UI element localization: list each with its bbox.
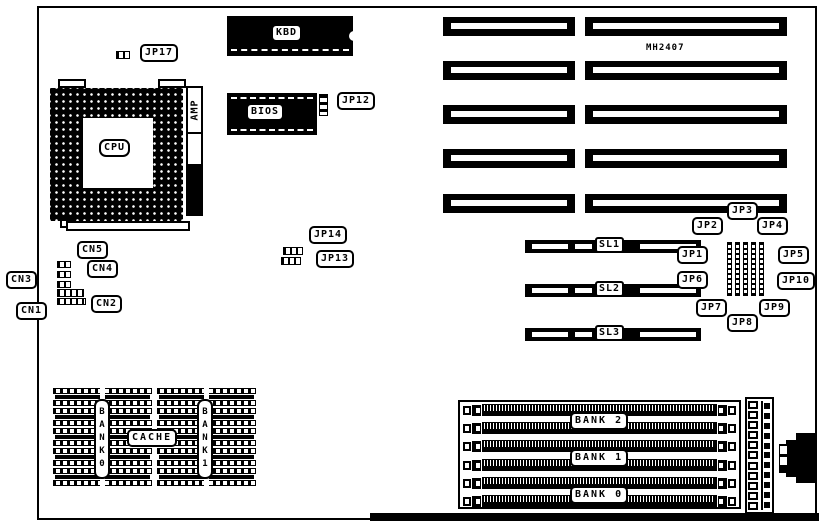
kbd-label-text: KBD: [276, 27, 297, 38]
cache-label: CACHE: [127, 429, 177, 447]
amp-module-top: AMP: [188, 88, 201, 132]
sl2-label: SL2: [595, 281, 624, 297]
cpu-socket: CPU: [50, 88, 183, 221]
bank1-label-text: BANK 1: [575, 452, 623, 463]
callout-tail: [35, 295, 41, 301]
jp12-label: JP12: [337, 92, 375, 110]
callout-tail: [79, 265, 85, 271]
jp3-label-text: JP3: [732, 205, 753, 216]
din-pin-notch: [780, 457, 787, 465]
jp10-label: JP10: [777, 272, 815, 290]
jp13-jumper: [281, 257, 301, 265]
jp17-label-text: JP17: [145, 47, 173, 58]
jp5-label: JP5: [778, 246, 809, 264]
callout-tail: [95, 288, 101, 294]
simm-socket-area: BANK 2 BANK 1 BANK 0: [458, 400, 741, 509]
cache-bank0-label: BANK0: [94, 399, 110, 479]
cpu-socket-base: [66, 221, 190, 231]
amp-label: AMP: [189, 99, 200, 120]
callout-tail: [761, 236, 767, 242]
jumper-pin-column: [759, 242, 764, 296]
power-connector: [745, 397, 774, 514]
cpu-socket-tab: [58, 79, 86, 88]
motherboard-diagram: JP17 KBD BIOS JP12 CPU AMP MH2407 SL1: [0, 0, 827, 527]
cn3-label-text: CN3: [11, 274, 32, 285]
jumper-pin-column: [743, 242, 748, 296]
jp3-label: JP3: [727, 202, 758, 220]
bios-label-text: BIOS: [251, 106, 279, 117]
jp12-label-text: JP12: [342, 95, 370, 106]
bios-chip-label: BIOS: [246, 103, 284, 121]
jp7-label: JP7: [696, 299, 727, 317]
power-connector-sockets: [748, 401, 760, 510]
callout-tail: [132, 49, 138, 55]
cpu-label: CPU: [99, 139, 130, 157]
jp12-jumper: [319, 94, 328, 116]
jp6-label-text: JP6: [682, 274, 703, 285]
chip-pin-row: [231, 97, 313, 99]
din-pin-notch: [780, 446, 787, 454]
kbd-chip-label: KBD: [271, 24, 302, 42]
memory-bank2-label: BANK 2: [570, 412, 628, 430]
jp10-label-text: JP10: [782, 275, 810, 286]
isa-slot: [443, 17, 575, 36]
cache-label-text: CACHE: [132, 432, 172, 443]
chip-pin-row: [231, 49, 349, 51]
jp1-label-text: JP1: [682, 249, 703, 260]
sl1-label: SL1: [595, 237, 624, 253]
amp-module-window: [188, 132, 201, 166]
isa-slot: [443, 61, 575, 80]
cn1-connector: [57, 298, 86, 305]
jp5-label-text: JP5: [783, 249, 804, 260]
callout-tail: [739, 221, 745, 227]
bios-chip: BIOS: [227, 93, 317, 135]
cn2-connector: [57, 289, 84, 297]
jp1-label: JP1: [677, 246, 708, 264]
chip-notch: [349, 31, 354, 41]
callout-tail: [715, 292, 721, 298]
cn5-label-text: CN5: [82, 244, 103, 255]
callout-tail: [739, 307, 745, 313]
callout-tail: [329, 97, 335, 103]
cn3-connector: [57, 281, 71, 288]
cache-bank1-label: BANK1: [197, 399, 213, 479]
bank0-label-text: BANK 0: [575, 489, 623, 500]
sl2-slot: SL2: [525, 284, 701, 297]
jp4-label: JP4: [757, 217, 788, 235]
jp2-label-text: JP2: [697, 220, 718, 231]
jumper-pin-column: [751, 242, 756, 296]
cpu-socket-tab: [158, 79, 186, 88]
amp-module: AMP: [186, 86, 203, 216]
jp2-label: JP2: [692, 217, 723, 235]
jp14-label: JP14: [309, 226, 347, 244]
cn4-label: CN4: [87, 260, 118, 278]
cn5-label: CN5: [77, 241, 108, 259]
sl2-label-text: SL2: [599, 283, 620, 294]
callout-tail: [711, 236, 717, 242]
callout-tail: [763, 292, 769, 298]
memory-bank1-label: BANK 1: [570, 449, 628, 467]
jp13-label: JP13: [316, 250, 354, 268]
cn1-label-text: CN1: [21, 305, 42, 316]
sl3-label-text: SL3: [599, 327, 620, 338]
power-connector-pins: [761, 401, 771, 510]
jumper-pin-column: [735, 242, 740, 296]
jp9-label-text: JP9: [764, 302, 785, 313]
jp9-label: JP9: [759, 299, 790, 317]
isa-slot: [443, 105, 575, 124]
isa-slot: [443, 194, 575, 213]
chip-pin-row: [231, 129, 313, 131]
jp8-label-text: JP8: [732, 317, 753, 328]
sl3-slot: SL3: [525, 328, 701, 341]
jp4-label-text: JP4: [762, 220, 783, 231]
cn3-label: CN3: [6, 271, 37, 289]
isa-slot: [585, 149, 787, 168]
memory-bank0-label: BANK 0: [570, 486, 628, 504]
callout-tail: [710, 251, 716, 257]
callout-tail: [308, 255, 314, 261]
jp17-label: JP17: [140, 44, 178, 62]
cn4-label-text: CN4: [92, 263, 113, 274]
jumper-pin-column: [727, 242, 732, 296]
kbd-chip: KBD: [227, 16, 353, 56]
isa-slot: [585, 17, 787, 36]
cn5-connector: [57, 261, 71, 268]
sl1-label-text: SL1: [599, 239, 620, 250]
jp8-label: JP8: [727, 314, 758, 332]
jp14-label-text: JP14: [314, 229, 342, 240]
isa-slot: [585, 61, 787, 80]
board-bottom-edge: [370, 513, 819, 521]
isa-slot: [443, 149, 575, 168]
cpu-label-text: CPU: [104, 142, 125, 153]
jp7-label-text: JP7: [701, 302, 722, 313]
callout-tail: [710, 276, 716, 282]
jp17-jumper: [116, 51, 130, 59]
callout-tail: [39, 276, 45, 282]
bank2-label-text: BANK 2: [575, 415, 623, 426]
callout-tail: [770, 251, 776, 257]
board-ref-text: MH2407: [646, 43, 685, 53]
cn2-label: CN2: [91, 295, 122, 313]
isa-slot: [585, 105, 787, 124]
cn1-label: CN1: [16, 302, 47, 320]
cn4-connector: [57, 271, 71, 278]
callout-tail: [769, 277, 775, 283]
jumper-block: [727, 242, 768, 296]
jp13-label-text: JP13: [321, 253, 349, 264]
jp6-label: JP6: [677, 271, 708, 289]
cn2-label-text: CN2: [96, 298, 117, 309]
sl3-label: SL3: [595, 325, 624, 341]
jp14-jumper: [283, 247, 303, 255]
sl1-slot: SL1: [525, 240, 701, 253]
